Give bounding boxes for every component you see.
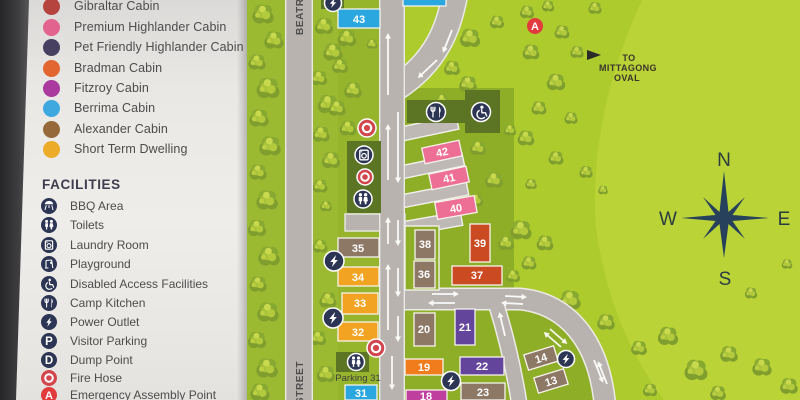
svg-text:43: 43 [353, 14, 365, 26]
svg-text:36: 36 [418, 269, 430, 281]
svg-text:BEATRICE: BEATRICE [295, 0, 306, 35]
svg-text:MITTAGONG: MITTAGONG [599, 63, 657, 73]
svg-text:23: 23 [477, 387, 489, 399]
svg-text:34: 34 [352, 272, 365, 284]
svg-text:OVAL: OVAL [614, 73, 640, 83]
svg-text:31: 31 [355, 388, 367, 400]
svg-text:S: S [719, 269, 732, 290]
svg-text:22: 22 [476, 361, 488, 373]
svg-text:39: 39 [474, 238, 486, 250]
svg-text:STREET: STREET [295, 361, 306, 400]
svg-text:40: 40 [449, 202, 463, 216]
svg-text:21: 21 [459, 322, 471, 334]
svg-text:P: P [45, 337, 53, 349]
svg-text:33: 33 [354, 298, 366, 310]
svg-text:N: N [717, 150, 731, 171]
svg-text:D: D [45, 355, 53, 367]
svg-text:E: E [778, 209, 791, 230]
svg-text:18: 18 [420, 391, 432, 400]
svg-text:41: 41 [442, 172, 456, 186]
svg-text:37: 37 [471, 270, 483, 282]
svg-text:20: 20 [418, 324, 430, 336]
svg-text:38: 38 [419, 239, 431, 251]
svg-text:A: A [531, 21, 539, 33]
svg-text:19: 19 [418, 362, 430, 374]
svg-text:35: 35 [352, 243, 364, 255]
svg-text:Parking 31: Parking 31 [335, 373, 380, 384]
svg-text:42: 42 [435, 146, 449, 160]
svg-text:32: 32 [352, 327, 364, 339]
svg-text:A: A [45, 391, 53, 400]
svg-text:W: W [659, 209, 677, 230]
svg-text:TO: TO [622, 53, 635, 63]
